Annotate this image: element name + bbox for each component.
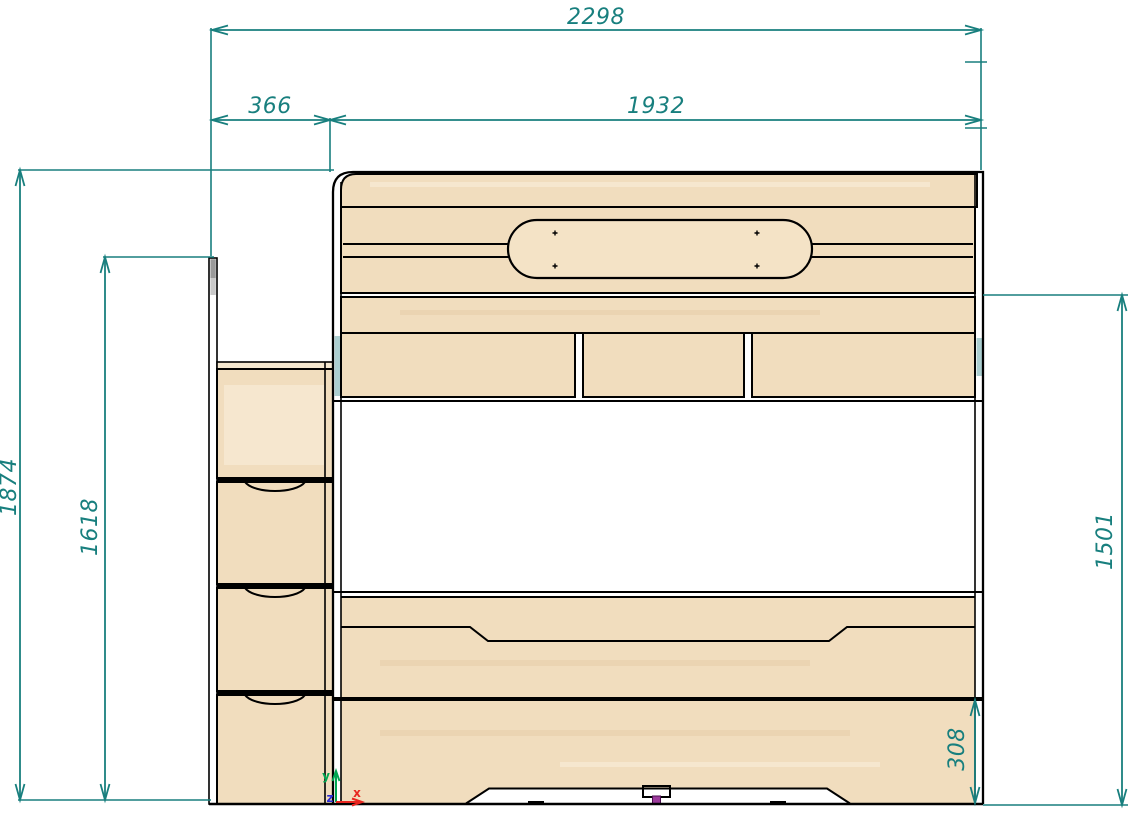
dimension-label-total-width: 2298 bbox=[567, 5, 625, 30]
lower-bunk-grain bbox=[380, 660, 810, 666]
dimension-ladder-width: 366 bbox=[212, 94, 330, 125]
bunk-bed-technical-drawing: 2298 366 1932 1874 1618 bbox=[0, 0, 1137, 815]
edge-band-right bbox=[977, 338, 983, 376]
dimension-label-bed-height: 1501 bbox=[1093, 512, 1118, 570]
top-rail-panel bbox=[341, 174, 977, 207]
origin-axis-y-label: y bbox=[322, 769, 330, 783]
dimension-label-ladder-height: 1618 bbox=[78, 498, 103, 556]
dimension-bed-height: 1501 bbox=[1093, 295, 1127, 805]
ladder-drawer-3 bbox=[217, 695, 333, 804]
dimension-total-width: 2298 bbox=[212, 5, 981, 35]
upper-rail-panel-right bbox=[752, 333, 975, 397]
bottom-drawer-grain-2 bbox=[560, 762, 880, 767]
upper-rail-band-grain bbox=[400, 310, 820, 315]
ladder-left-post bbox=[209, 258, 217, 804]
origin-axis-z-label: z bbox=[327, 791, 334, 805]
origin-axis-x-label: x bbox=[353, 786, 361, 800]
dimension-bed-width: 1932 bbox=[330, 94, 981, 125]
ladder-post-cap-top bbox=[210, 259, 215, 278]
upper-rail-panel-middle bbox=[583, 333, 744, 397]
ladder-top-panel-grain bbox=[224, 385, 324, 465]
top-rail-grain bbox=[370, 182, 930, 187]
ladder-post-cap-bottom bbox=[210, 278, 215, 295]
ladder-drawer-unit bbox=[209, 258, 333, 804]
lower-bunk-front bbox=[341, 597, 975, 697]
ladder-top-edge bbox=[217, 362, 333, 369]
bed-body bbox=[333, 172, 983, 805]
bottom-drawer-grain-1 bbox=[380, 730, 850, 736]
cad-drawing-canvas: 2298 366 1932 1874 1618 bbox=[0, 0, 1137, 815]
dimension-label-total-height: 1874 bbox=[0, 458, 22, 516]
dimension-total-height: 1874 bbox=[0, 170, 25, 800]
dimension-label-ladder-width: 366 bbox=[248, 94, 292, 119]
edge-band-left bbox=[335, 336, 341, 396]
dimension-label-bottom-drawer-height: 308 bbox=[945, 727, 970, 771]
headboard-oval-insert bbox=[508, 220, 812, 278]
ladder-drawer-1 bbox=[217, 482, 333, 584]
dimension-label-bed-width: 1932 bbox=[627, 94, 685, 119]
ladder-drawer-2 bbox=[217, 588, 333, 691]
dimension-ladder-height: 1618 bbox=[78, 257, 110, 800]
upper-rail-panel-left bbox=[341, 333, 575, 397]
